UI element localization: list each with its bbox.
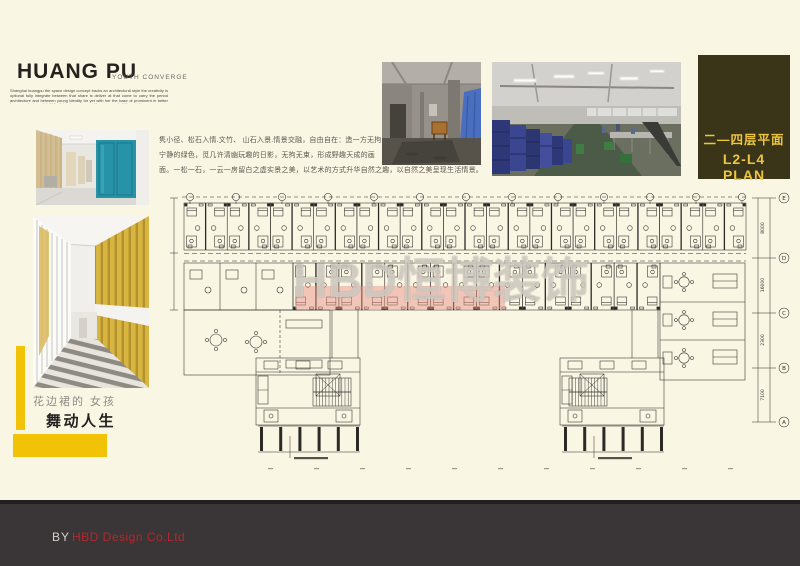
- photo-factory-image: [492, 62, 681, 176]
- svg-text:16000: 16000: [760, 278, 766, 292]
- footer-by-label: BY: [52, 530, 70, 544]
- photo-corridor-elevator-image: [36, 130, 149, 205]
- caption-subtitle: 花边裙的 女孩: [33, 393, 116, 409]
- svg-text:E: E: [782, 196, 786, 202]
- footer-bar: BY HBD Design Co.Ltd: [0, 500, 800, 566]
- plan-title-chinese: 二—四层平面: [698, 129, 790, 148]
- svg-text:A: A: [782, 420, 786, 426]
- photo-warehouse-before: [382, 62, 481, 165]
- footer-company-name: HBD Design Co.Ltd: [72, 530, 185, 544]
- svg-text:8000: 8000: [760, 222, 766, 234]
- yellow-block-accent: [13, 434, 107, 457]
- caption-title: 舞动人生: [46, 410, 116, 431]
- svg-text:C: C: [782, 311, 786, 317]
- svg-text:7100: 7100: [760, 389, 766, 401]
- page-subtitle: YOUTH CONVERGE: [112, 74, 188, 81]
- photo-corridor-elevator: [36, 130, 149, 205]
- yellow-bar-accent: [16, 346, 25, 430]
- header-fine-print: Shanghai huangpu the space design concep…: [10, 89, 168, 104]
- photo-factory: [492, 62, 681, 176]
- svg-text:D: D: [782, 256, 786, 262]
- svg-text:2300: 2300: [760, 334, 766, 346]
- svg-text:B: B: [782, 366, 786, 372]
- photo-warehouse-before-image: [382, 62, 481, 165]
- plan-title-panel: 二—四层平面 L2-L4 PLAN: [698, 55, 790, 179]
- intro-line-3: 面。一松一石，一云一房留白之虚实景之美，以艺术的方式升华自然之趣，以自然之美呈现…: [159, 163, 495, 178]
- photo-corridor-yellow: [33, 216, 149, 388]
- floor-plan-drawing: EDCBA80001600023007100: [168, 190, 798, 475]
- plan-title-english: L2-L4 PLAN: [698, 151, 790, 183]
- photo-corridor-yellow-image: [33, 216, 149, 388]
- presentation-board: HUANG PU YOUTH CONVERGE Shanghai huangpu…: [0, 0, 800, 566]
